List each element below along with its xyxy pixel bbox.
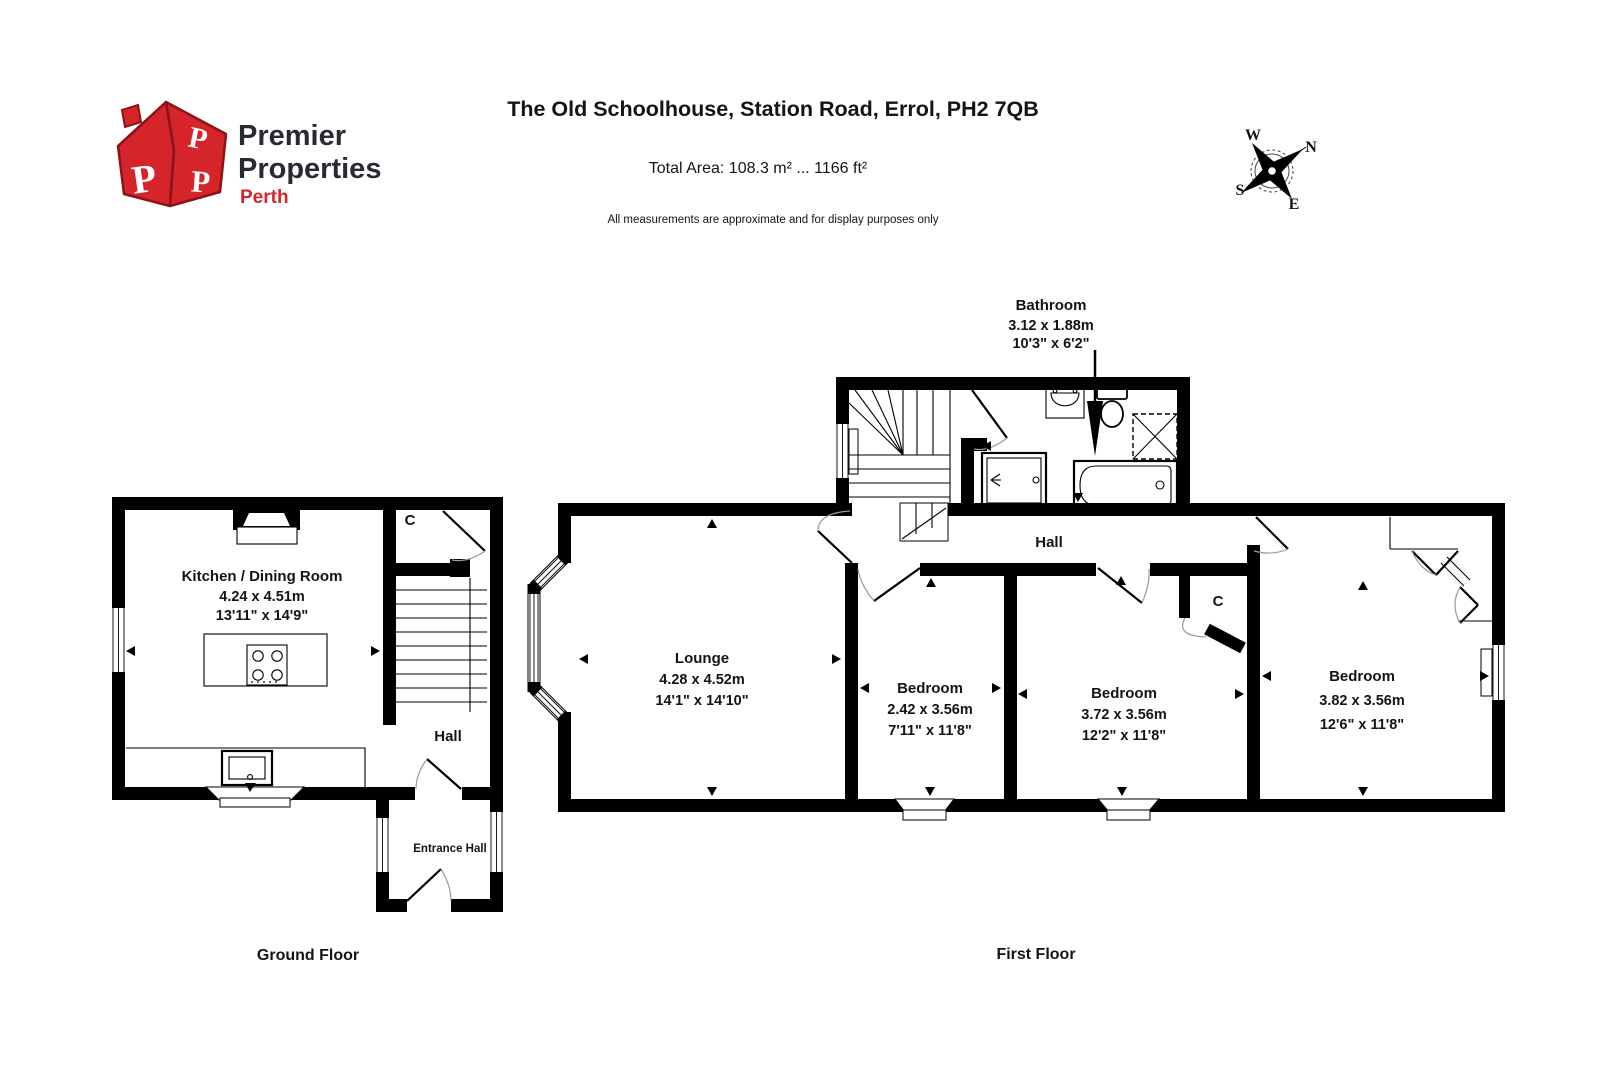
window [1481,645,1505,700]
ground-floor-caption: Ground Floor [257,947,359,964]
room-label-cupboard-ground: C [405,512,416,529]
room-label-hall-ground: Hall [434,728,462,745]
compass-rose-icon: W N S E [1236,127,1318,213]
first-floor-plan: Bathroom 3.12 x 1.88m 10'3" x 6'2" Hall … [530,297,1505,963]
wash-basin-icon [1046,388,1084,418]
window [1098,799,1159,820]
window [112,608,125,672]
measure-arrow [1358,787,1368,796]
disclaimer-text: All measurements are approximate and for… [607,214,938,226]
door [443,511,485,561]
room-dim-bedroom3-metric: 3.82 x 3.56m [1319,693,1404,709]
room-dim-bedroom3-imperial: 12'6" x 11'8" [1320,717,1404,733]
measure-arrow [1018,689,1027,699]
room-dim-bedroom2-metric: 3.72 x 3.56m [1081,707,1166,723]
measure-arrow [1235,689,1244,699]
room-label-bedroom1: Bedroom [897,680,963,697]
room-dim-bedroom2-imperial: 12'2" x 11'8" [1082,728,1166,744]
window [376,818,389,872]
room-dim-kitchen-metric: 4.24 x 4.51m [219,589,304,605]
shower-cubicle-icon [982,453,1046,508]
door [818,511,852,563]
measure-arrow [860,683,869,693]
door [858,568,920,601]
room-dim-bathroom-imperial: 10'3" x 6'2" [1012,336,1089,352]
compass-w-label: W [1245,127,1261,144]
kitchen-island [204,634,327,686]
staircase-ground [396,578,487,712]
room-label-lounge: Lounge [675,650,729,667]
window [895,799,954,820]
logo-region: Perth [240,187,289,208]
window [490,812,503,872]
room-label-bathroom: Bathroom [1016,297,1087,314]
measure-arrow [1262,671,1271,681]
measure-arrow [925,787,935,796]
room-dim-lounge-imperial: 14'1" x 14'10" [655,693,748,709]
logo-name-line2: Properties [238,153,381,185]
measure-arrow [707,519,717,528]
compass-n-label: N [1305,139,1317,156]
measure-arrow [126,646,135,656]
measure-arrow [992,683,1001,693]
bathroom-pointer-arrow [1087,350,1103,456]
window [836,424,858,478]
room-dim-kitchen-imperial: 13'11" x 14'9" [216,608,308,624]
room-dim-lounge-metric: 4.28 x 4.52m [659,672,744,688]
ground-floor-plan: Kitchen / Dining Room 4.24 x 4.51m 13'11… [112,497,503,964]
window [206,787,304,807]
measure-arrow [1358,581,1368,590]
logo-house-icon: P P P [118,102,226,206]
door [1098,568,1149,603]
staircase-first [849,390,950,541]
measure-arrow [707,787,717,796]
measure-arrow [1117,787,1127,796]
room-label-hall-first: Hall [1035,534,1063,551]
first-floor-walls [534,377,1505,812]
floorplan-page: P P P Premier Properties Perth The Old S… [0,0,1620,1080]
room-label-bedroom3: Bedroom [1329,668,1395,685]
first-floor-caption: First Floor [996,946,1075,963]
total-area-text: Total Area: 108.3 m² ... 1166 ft² [649,160,868,177]
wardrobe [1390,517,1492,623]
measure-arrow [832,654,841,664]
room-dim-bathroom-metric: 3.12 x 1.88m [1008,318,1093,334]
room-label-cupboard-first: C [1213,593,1224,610]
room-label-entrance-hall: Entrance Hall [413,843,487,855]
measure-arrow [926,578,936,587]
bathtub-icon [1074,461,1177,510]
floorplan-svg: P P P Premier Properties Perth The Old S… [0,0,1620,1080]
logo-name-line1: Premier [238,120,346,152]
door [416,759,461,789]
logo: P P P Premier Properties Perth [118,102,381,208]
shower-area-icon [1133,414,1177,459]
room-label-kitchen: Kitchen / Dining Room [182,568,343,585]
measure-arrow [579,654,588,664]
logo-monogram-p3: P [190,163,211,199]
room-dim-bedroom1-metric: 2.42 x 3.56m [887,702,972,718]
measure-arrow [1116,576,1126,585]
measure-arrow [371,646,380,656]
kitchen-counter [126,748,365,792]
compass-e-label: E [1289,196,1300,213]
room-label-bedroom2: Bedroom [1091,685,1157,702]
cupboard-door [1183,618,1206,637]
compass-s-label: S [1236,182,1245,199]
entrance-door [407,869,451,901]
room-dim-bedroom1-imperial: 7'11" x 11'8" [888,723,972,739]
page-title: The Old Schoolhouse, Station Road, Errol… [507,97,1039,121]
